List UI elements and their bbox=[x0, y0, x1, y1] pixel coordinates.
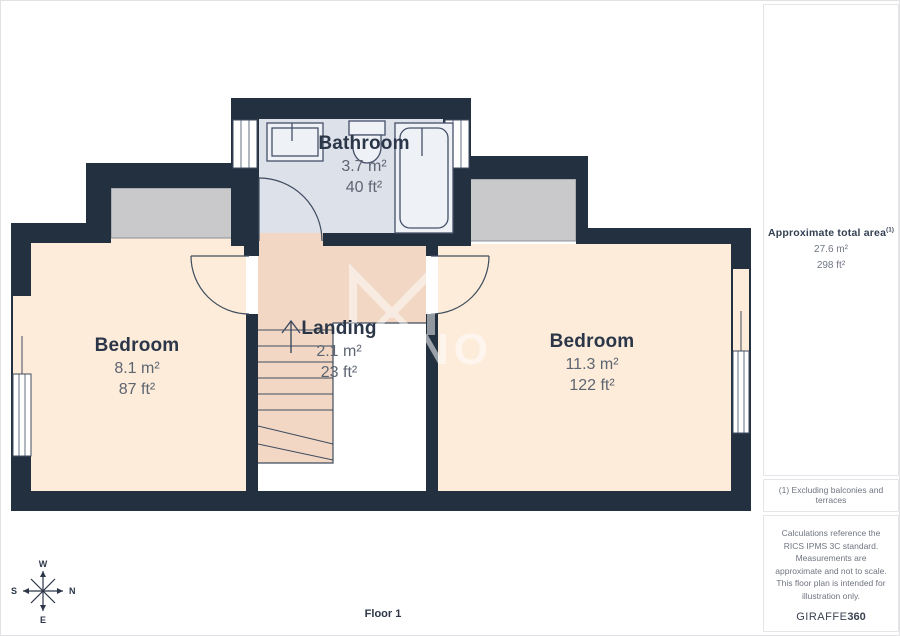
floor-label: Floor 1 bbox=[365, 608, 402, 620]
brand-logo: GIRAFFE360 bbox=[773, 611, 889, 623]
room-area-m: 3.7 m² bbox=[318, 156, 409, 177]
footnote-panel: (1) Excluding balconies and terraces bbox=[763, 479, 899, 512]
compass-arrow-e bbox=[40, 605, 46, 611]
total-area-title: Approximate total area(1) bbox=[764, 227, 898, 239]
compass-arrow-n bbox=[57, 588, 63, 594]
info-sidebar: Approximate total area(1) 27.6 m² 298 ft… bbox=[763, 4, 899, 632]
floorplan-drawing: W N E S bbox=[1, 1, 763, 636]
compass-label-n: N bbox=[69, 586, 76, 596]
total-area-superscript: (1) bbox=[886, 228, 894, 234]
room-name: Bedroom bbox=[95, 334, 180, 358]
watermark-text: NO bbox=[417, 325, 493, 375]
room-area-ft: 122 ft² bbox=[550, 375, 635, 396]
room-name: Bedroom bbox=[550, 330, 635, 354]
room-name: Bathroom bbox=[318, 132, 409, 156]
room-area-m: 2.1 m² bbox=[301, 341, 376, 362]
stairwell-void-lower bbox=[258, 463, 333, 491]
brand-name: GIRAFFE bbox=[796, 611, 847, 623]
compass: W N E S bbox=[11, 559, 76, 625]
sink bbox=[267, 123, 323, 161]
room-area-m: 8.1 m² bbox=[95, 358, 180, 379]
bathroom-window-left bbox=[233, 120, 257, 168]
total-area-panel: Approximate total area(1) 27.6 m² 298 ft… bbox=[763, 4, 899, 476]
room-area-ft: 40 ft² bbox=[318, 177, 409, 198]
floorplan-canvas: W N E S NO Bathroom 3.7 m² 40 ft² Bedroo… bbox=[0, 0, 900, 636]
compass-label-w: W bbox=[39, 559, 48, 569]
compass-arrow-w bbox=[40, 571, 46, 577]
landing-label: Landing 2.1 m² 23 ft² bbox=[301, 317, 376, 383]
room-area-m: 11.3 m² bbox=[550, 354, 635, 375]
bathroom-label: Bathroom 3.7 m² 40 ft² bbox=[318, 132, 409, 198]
compass-label-e: E bbox=[40, 615, 46, 625]
brand-suffix: 360 bbox=[847, 611, 865, 623]
room-name: Landing bbox=[301, 317, 376, 341]
room-area-ft: 87 ft² bbox=[95, 379, 180, 400]
total-area-title-text: Approximate total area bbox=[768, 227, 886, 239]
bedroom-left-label: Bedroom 8.1 m² 87 ft² bbox=[95, 334, 180, 400]
disclaimer-text: Calculations reference the RICS IPMS 3C … bbox=[773, 527, 889, 602]
room-area-ft: 23 ft² bbox=[301, 362, 376, 383]
compass-label-s: S bbox=[11, 586, 17, 596]
total-area-m: 27.6 m² bbox=[764, 242, 898, 258]
bedroom-right-label: Bedroom 11.3 m² 122 ft² bbox=[550, 330, 635, 396]
left-window bbox=[13, 374, 31, 456]
disclaimer-panel: Calculations reference the RICS IPMS 3C … bbox=[763, 515, 899, 632]
compass-arrow-s bbox=[23, 588, 29, 594]
right-window bbox=[733, 351, 749, 433]
closet-left bbox=[111, 188, 246, 238]
total-area-ft: 298 ft² bbox=[764, 258, 898, 274]
footnote-text: (1) Excluding balconies and terraces bbox=[770, 485, 892, 505]
closet-right bbox=[461, 179, 576, 241]
